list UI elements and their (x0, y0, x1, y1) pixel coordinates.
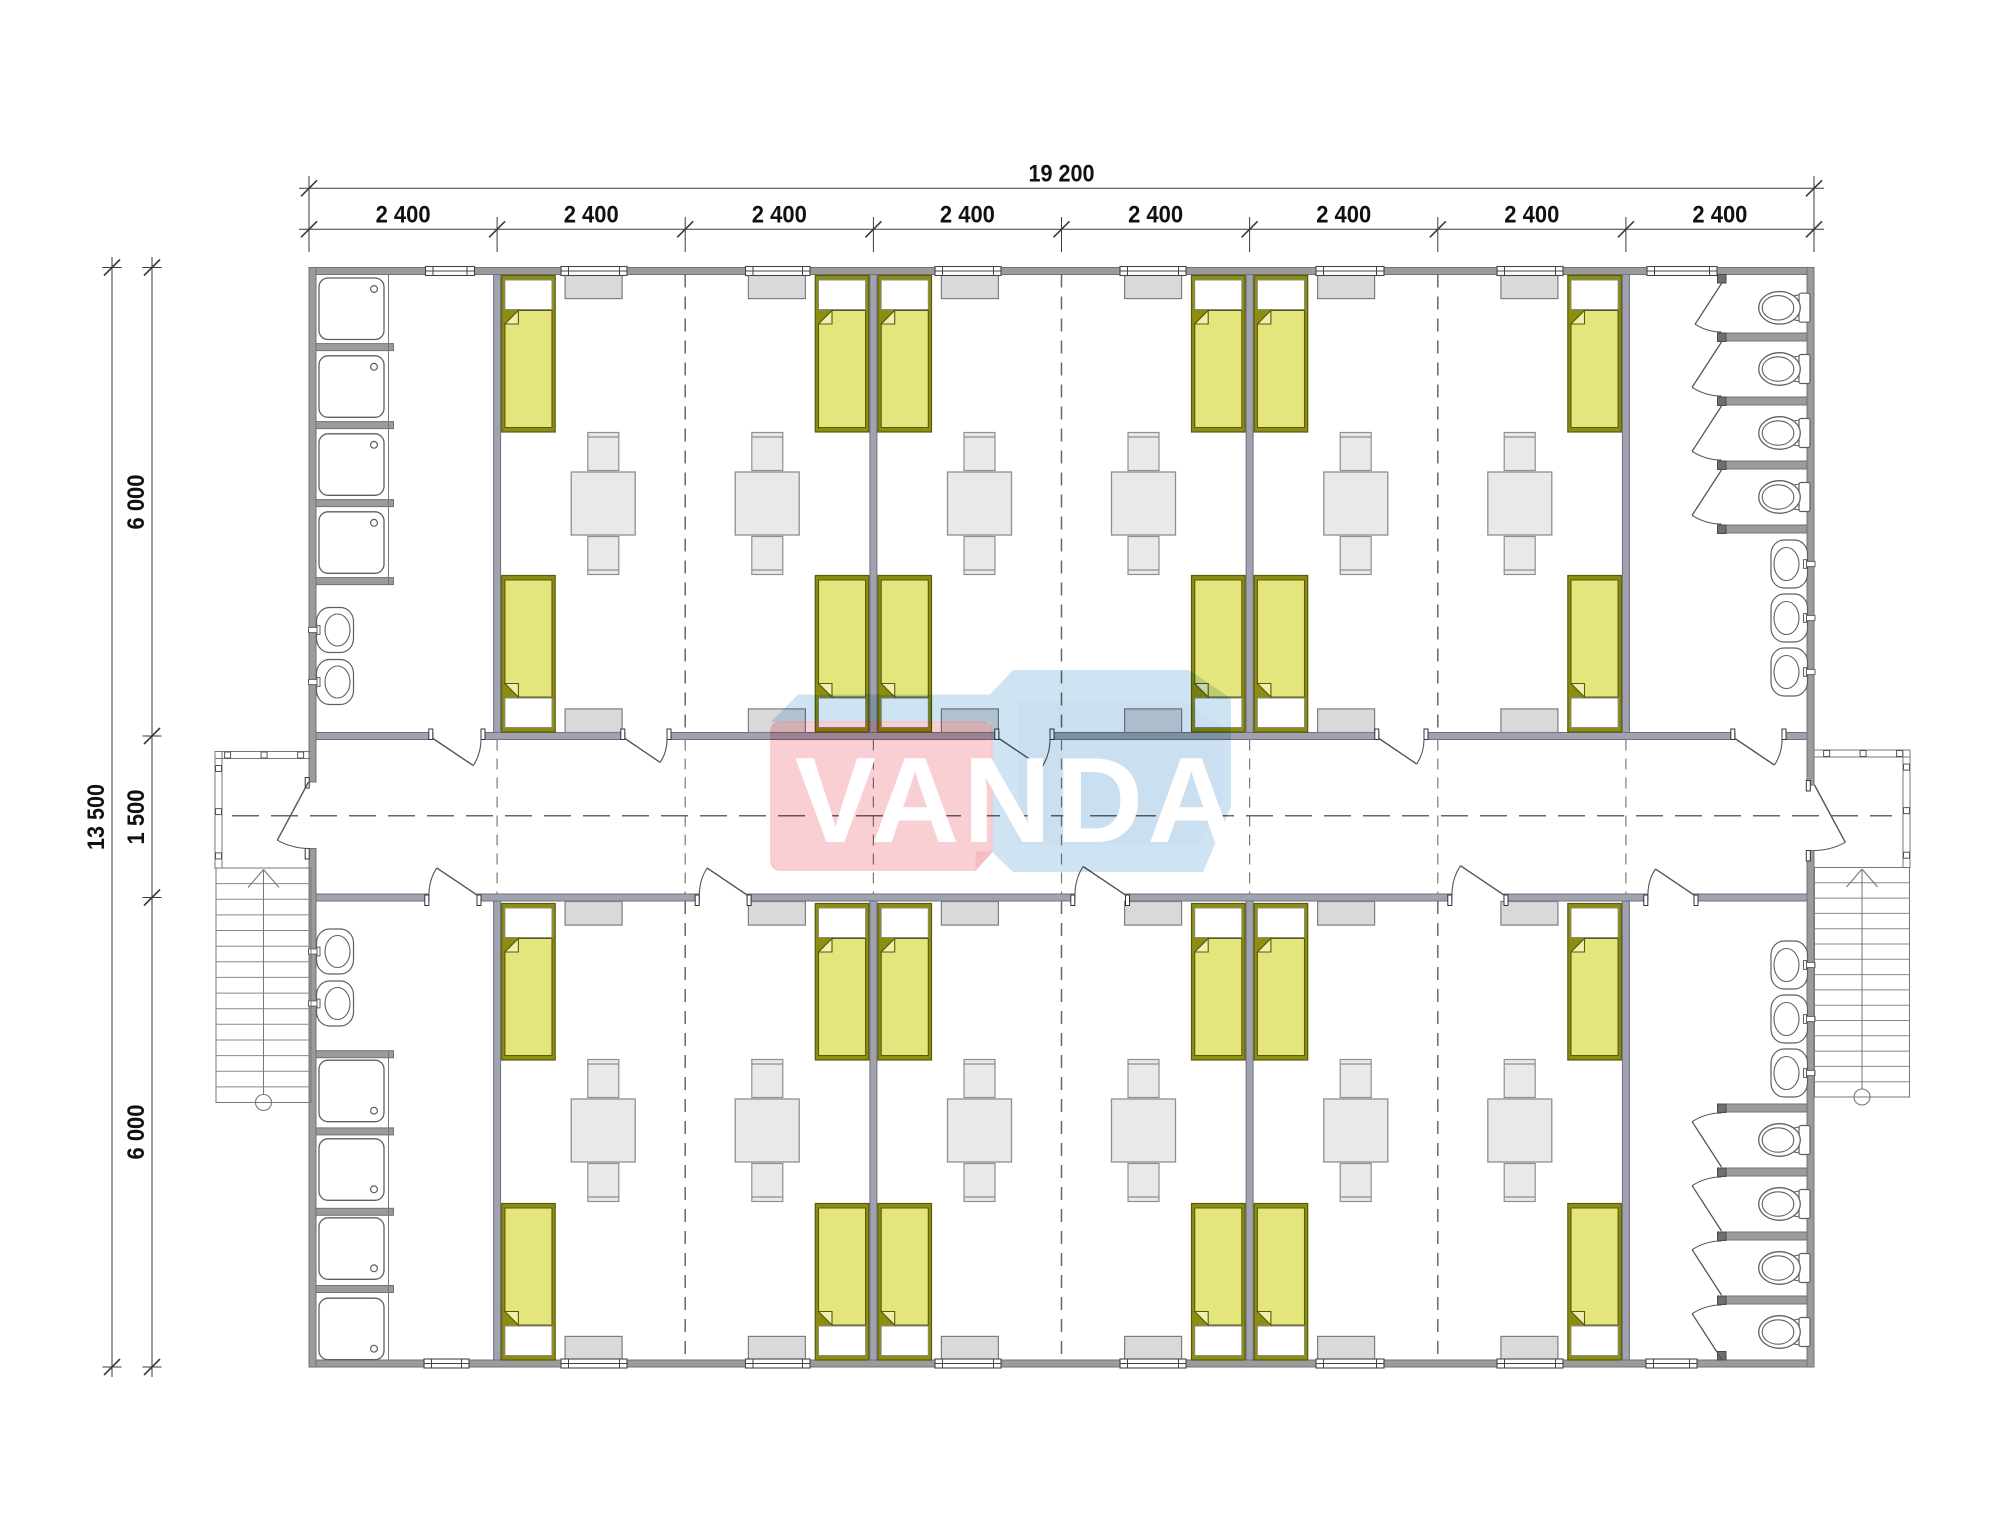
svg-text:2 400: 2 400 (564, 202, 619, 229)
svg-text:2 400: 2 400 (752, 202, 807, 229)
svg-text:2 400: 2 400 (1692, 202, 1747, 229)
svg-text:6 000: 6 000 (123, 475, 150, 530)
svg-text:13 500: 13 500 (83, 784, 110, 850)
svg-text:2 400: 2 400 (1316, 202, 1371, 229)
svg-text:1 500: 1 500 (123, 790, 150, 845)
svg-text:6 000: 6 000 (123, 1105, 150, 1160)
svg-text:2 400: 2 400 (1128, 202, 1183, 229)
svg-text:2 400: 2 400 (940, 202, 995, 229)
svg-text:19 200: 19 200 (1029, 161, 1095, 188)
svg-text:2 400: 2 400 (376, 202, 431, 229)
svg-text:VANDA: VANDA (795, 732, 1240, 868)
svg-text:2 400: 2 400 (1504, 202, 1559, 229)
